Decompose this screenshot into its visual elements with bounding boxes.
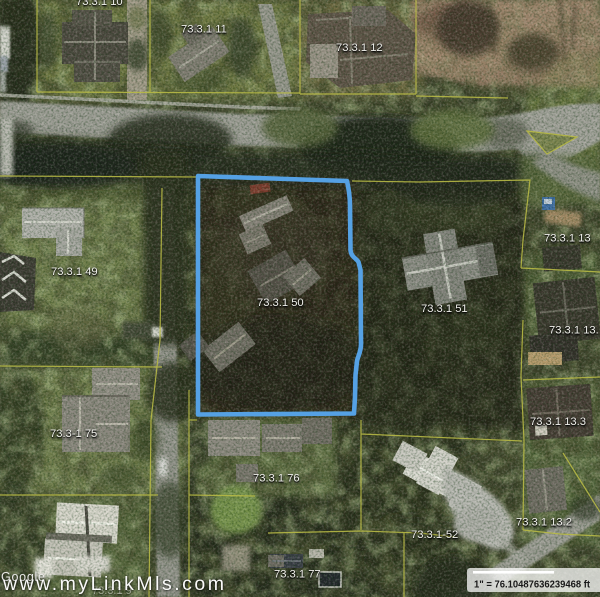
svg-text:73.3.1 10: 73.3.1 10 [76, 0, 123, 8]
svg-text:www.myLinkMls.com: www.myLinkMls.com [2, 573, 224, 595]
svg-text:73.3.1 11: 73.3.1 11 [181, 24, 227, 36]
svg-text:73.3.1 13: 73.3.1 13 [544, 233, 591, 245]
svg-text:73.3.1 13.: 73.3.1 13. [549, 325, 599, 337]
svg-text:73.3.1 76: 73.3.1 76 [253, 473, 300, 485]
svg-text:73.3.1 12: 73.3.1 12 [336, 42, 383, 54]
svg-text:73.3.1 13.3: 73.3.1 13.3 [530, 416, 586, 428]
svg-text:73.3-1 75: 73.3-1 75 [50, 428, 97, 440]
svg-text:73.3.1 50: 73.3.1 50 [257, 297, 304, 309]
svg-text:73.3.1 49: 73.3.1 49 [51, 266, 98, 278]
svg-text:1" = 76.10487636239468 ft: 1" = 76.10487636239468 ft [474, 579, 590, 591]
svg-text:73.3.1 77: 73.3.1 77 [274, 569, 321, 581]
svg-text:73.3.1 13.2: 73.3.1 13.2 [516, 517, 572, 529]
svg-text:73.3.1-52: 73.3.1-52 [411, 529, 458, 541]
svg-text:73.3.1 51: 73.3.1 51 [421, 303, 468, 315]
